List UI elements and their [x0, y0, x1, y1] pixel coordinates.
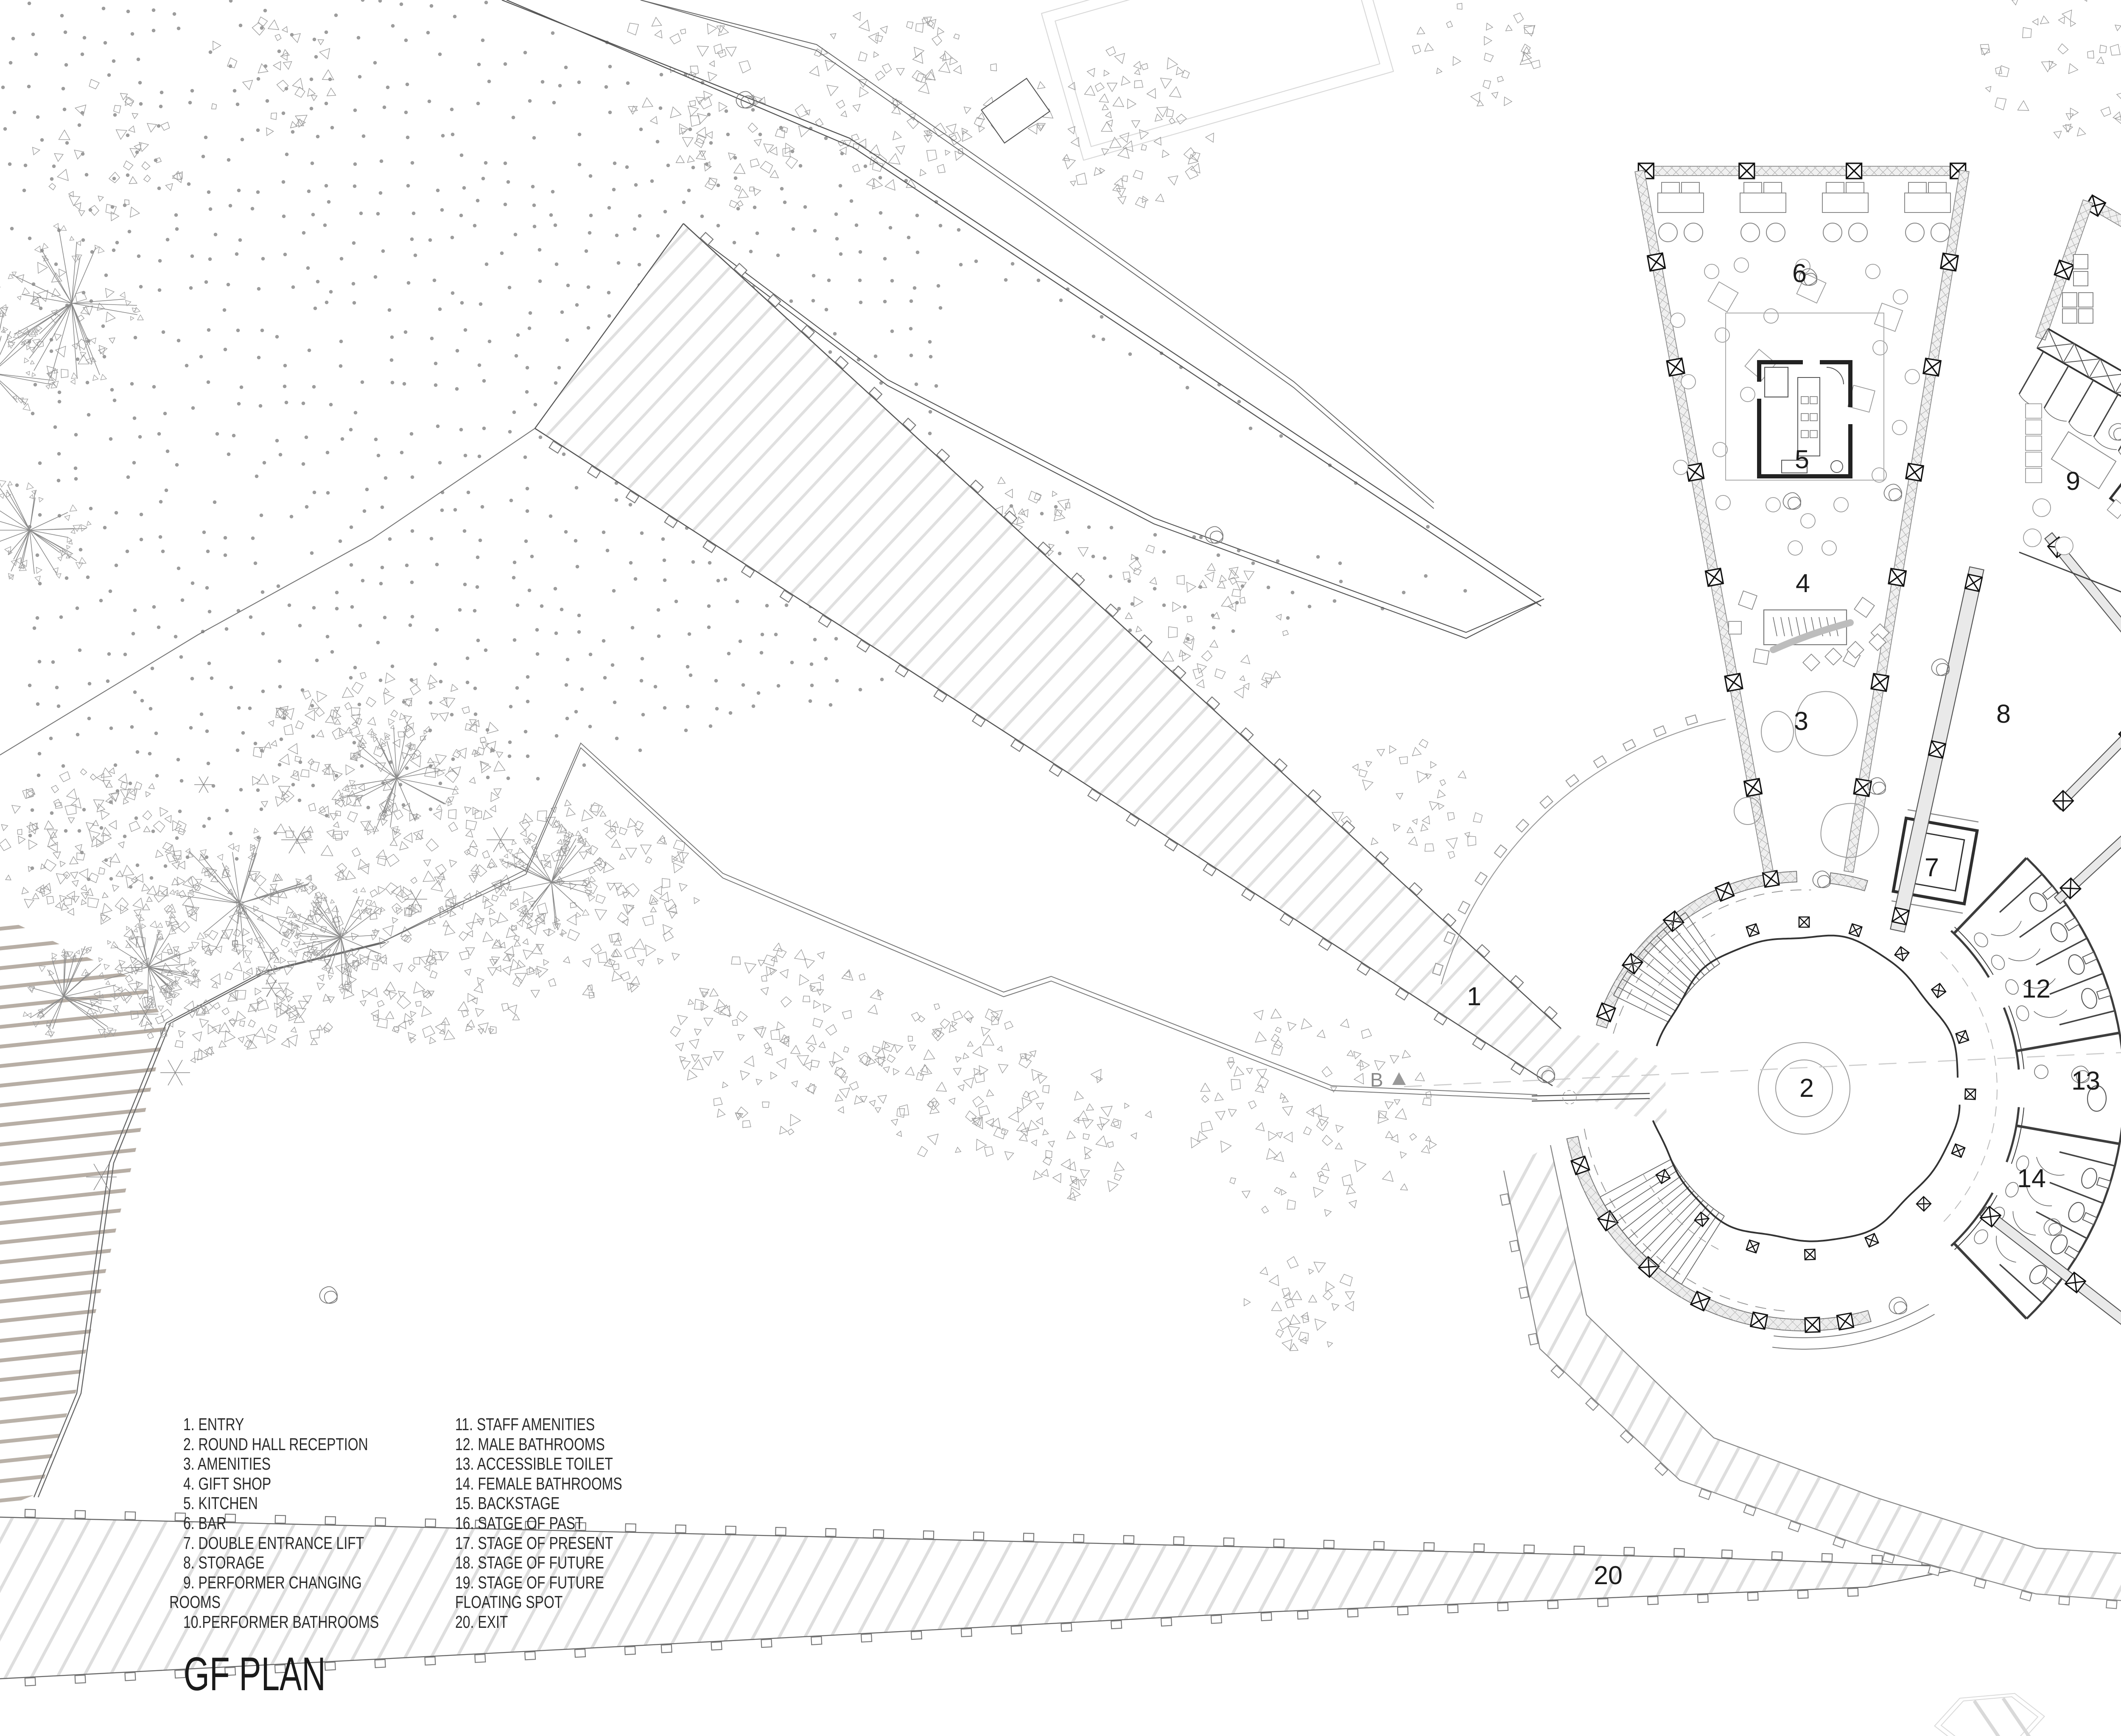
- svg-text:FLOATING SPOT: FLOATING SPOT: [455, 1592, 562, 1612]
- svg-text:3. AMENITIES: 3. AMENITIES: [183, 1454, 271, 1473]
- svg-text:20. EXIT: 20. EXIT: [455, 1612, 508, 1632]
- svg-text:13. ACCESSIBLE TOILET: 13. ACCESSIBLE TOILET: [455, 1454, 613, 1473]
- svg-text:14: 14: [2017, 1164, 2046, 1193]
- svg-text:7: 7: [1925, 853, 1939, 882]
- svg-text:19. STAGE OF FUTURE: 19. STAGE OF FUTURE: [455, 1573, 604, 1592]
- svg-text:3: 3: [1794, 707, 1808, 735]
- svg-text:16. SATGE OF PAST: 16. SATGE OF PAST: [455, 1513, 584, 1533]
- svg-text:7. DOUBLE ENTRANCE LIFT: 7. DOUBLE ENTRANCE LIFT: [183, 1533, 364, 1553]
- svg-text:6: 6: [1792, 259, 1807, 288]
- svg-text:13: 13: [2071, 1066, 2100, 1095]
- svg-text:12. MALE BATHROOMS: 12. MALE BATHROOMS: [455, 1434, 605, 1454]
- svg-text:5: 5: [1795, 445, 1809, 474]
- svg-text:15. BACKSTAGE: 15. BACKSTAGE: [455, 1493, 560, 1513]
- svg-text:GF PLAN: GF PLAN: [184, 1648, 326, 1701]
- svg-text:B: B: [1370, 1069, 1383, 1091]
- svg-text:6. BAR: 6. BAR: [183, 1513, 226, 1533]
- svg-text:8. STORAGE: 8. STORAGE: [183, 1553, 264, 1572]
- svg-text:14. FEMALE BATHROOMS: 14. FEMALE BATHROOMS: [455, 1474, 622, 1493]
- svg-text:11. STAFF AMENITIES: 11. STAFF AMENITIES: [455, 1415, 595, 1434]
- svg-text:1. ENTRY: 1. ENTRY: [183, 1415, 244, 1434]
- svg-text:2. ROUND HALL RECEPTION: 2. ROUND HALL RECEPTION: [183, 1434, 368, 1454]
- svg-text:4: 4: [1796, 569, 1810, 598]
- svg-text:18. STAGE OF FUTURE: 18. STAGE OF FUTURE: [455, 1553, 604, 1572]
- svg-text:ROOMS: ROOMS: [169, 1592, 221, 1612]
- svg-text:17. STAGE OF PRESENT: 17. STAGE OF PRESENT: [455, 1533, 613, 1553]
- svg-text:12: 12: [2022, 974, 2051, 1003]
- svg-text:8: 8: [1996, 699, 2011, 728]
- svg-text:4. GIFT SHOP: 4. GIFT SHOP: [183, 1474, 271, 1493]
- svg-text:9: 9: [2066, 467, 2080, 495]
- svg-text:1: 1: [1467, 982, 1481, 1011]
- svg-text:20: 20: [1594, 1561, 1623, 1590]
- svg-text:10.PERFORMER BATHROOMS: 10.PERFORMER BATHROOMS: [183, 1612, 379, 1632]
- svg-text:2: 2: [1799, 1073, 1814, 1102]
- svg-text:9. PERFORMER CHANGING: 9. PERFORMER CHANGING: [183, 1573, 362, 1592]
- svg-text:5. KITCHEN: 5. KITCHEN: [183, 1493, 258, 1513]
